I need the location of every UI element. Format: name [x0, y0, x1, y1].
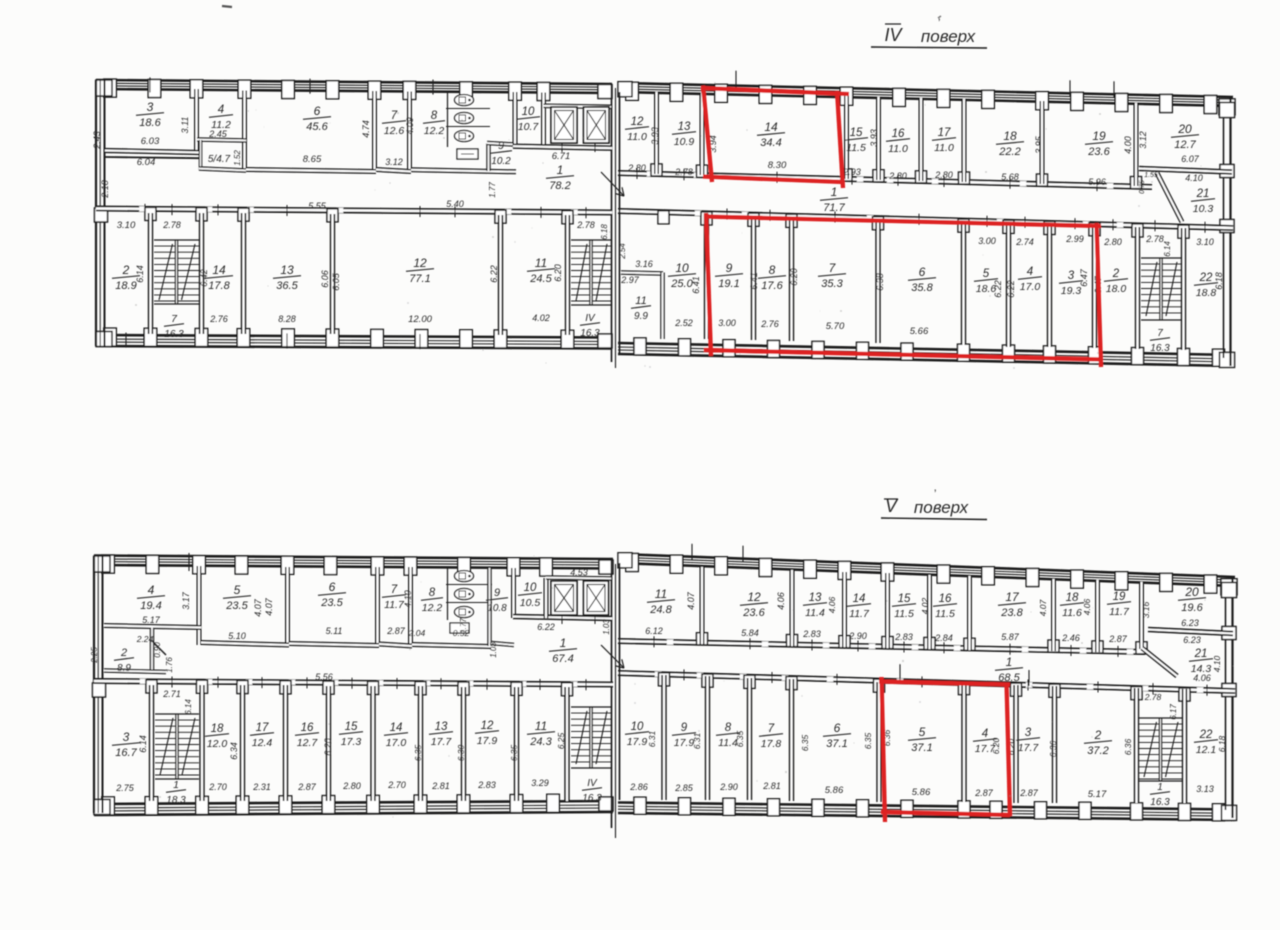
- svg-text:16: 16: [939, 593, 952, 605]
- svg-text:11.0: 11.0: [934, 142, 954, 154]
- svg-text:4.07: 4.07: [686, 591, 696, 610]
- svg-text:2.78: 2.78: [674, 167, 693, 177]
- svg-text:34.4: 34.4: [760, 137, 781, 149]
- svg-text:4.10: 4.10: [1212, 655, 1222, 672]
- svg-text:23.8: 23.8: [1000, 607, 1023, 619]
- svg-text:10: 10: [522, 106, 535, 118]
- svg-text:6.31: 6.31: [692, 732, 702, 749]
- svg-text:4.00: 4.00: [1123, 136, 1133, 154]
- svg-text:3.13: 3.13: [1196, 784, 1214, 794]
- svg-text:2.87: 2.87: [1019, 788, 1039, 798]
- svg-text:3.12: 3.12: [1138, 131, 1148, 149]
- svg-text:10: 10: [631, 721, 644, 733]
- svg-text:16.3: 16.3: [582, 793, 602, 804]
- svg-text:2.83: 2.83: [477, 780, 496, 790]
- svg-text:11.7: 11.7: [384, 599, 405, 611]
- svg-text:7: 7: [768, 723, 775, 735]
- svg-text:3.93: 3.93: [869, 129, 879, 147]
- svg-text:2: 2: [1112, 268, 1120, 280]
- svg-text:6.22: 6.22: [489, 265, 499, 283]
- svg-text:17: 17: [1005, 590, 1020, 604]
- svg-text:3.17: 3.17: [181, 591, 191, 610]
- svg-text:4.02: 4.02: [532, 313, 550, 323]
- svg-text:22: 22: [1199, 272, 1213, 284]
- svg-text:12.1: 12.1: [1196, 744, 1216, 756]
- svg-text:19.4: 19.4: [140, 600, 161, 612]
- svg-text:2.54: 2.54: [618, 243, 627, 260]
- svg-text:4.10: 4.10: [1185, 173, 1203, 183]
- svg-text:6.20: 6.20: [323, 738, 333, 756]
- svg-text:18: 18: [211, 723, 224, 735]
- svg-text:21: 21: [1194, 648, 1208, 660]
- svg-text:2.04: 2.04: [408, 628, 426, 638]
- svg-text:2.83: 2.83: [894, 632, 913, 642]
- svg-text:11: 11: [635, 295, 646, 307]
- svg-text:3.29: 3.29: [531, 778, 549, 788]
- svg-text:4: 4: [1027, 266, 1033, 278]
- svg-text:6.14: 6.14: [1163, 241, 1172, 257]
- svg-text:3.16: 3.16: [635, 259, 653, 269]
- svg-text:6.20: 6.20: [991, 737, 1001, 754]
- svg-text:11.5: 11.5: [846, 142, 866, 154]
- svg-text:20: 20: [1184, 585, 1199, 599]
- svg-text:6.36: 6.36: [1048, 740, 1058, 757]
- svg-text:16.3: 16.3: [164, 329, 184, 340]
- svg-text:6.06: 6.06: [320, 270, 330, 288]
- svg-text:5.17: 5.17: [1088, 789, 1107, 800]
- svg-text:24.3: 24.3: [529, 736, 552, 748]
- svg-text:1: 1: [173, 779, 179, 791]
- svg-text:18.9: 18.9: [115, 280, 136, 292]
- svg-text:4.06: 4.06: [776, 592, 786, 610]
- svg-text:5.10: 5.10: [228, 631, 246, 641]
- svg-text:1: 1: [831, 185, 838, 199]
- svg-text:67.4: 67.4: [552, 653, 573, 665]
- svg-text:8.30: 8.30: [768, 160, 787, 171]
- svg-text:10.8: 10.8: [487, 603, 507, 614]
- svg-text:6.47: 6.47: [1079, 268, 1089, 287]
- svg-text:5.56: 5.56: [315, 672, 333, 682]
- svg-text:9: 9: [498, 140, 504, 152]
- svg-text:20: 20: [1177, 122, 1192, 136]
- svg-text:2.86: 2.86: [629, 782, 648, 792]
- svg-text:5: 5: [919, 725, 926, 739]
- svg-text:36.5: 36.5: [276, 280, 298, 292]
- svg-text:12.7: 12.7: [297, 737, 319, 749]
- svg-text:6: 6: [919, 265, 926, 279]
- svg-text:поверх: поверх: [921, 27, 976, 46]
- svg-text:12: 12: [481, 720, 494, 732]
- svg-text:2.97: 2.97: [620, 275, 640, 285]
- svg-text:6.41: 6.41: [749, 272, 759, 290]
- svg-text:11: 11: [655, 587, 667, 601]
- svg-text:11.7: 11.7: [849, 608, 870, 620]
- svg-text:7: 7: [1157, 328, 1163, 339]
- svg-text:6: 6: [329, 580, 336, 594]
- svg-text:37.2: 37.2: [1087, 745, 1108, 757]
- svg-text:2.46: 2.46: [1061, 633, 1080, 643]
- svg-text:4.07: 4.07: [264, 597, 274, 616]
- svg-text:2.43: 2.43: [92, 131, 102, 150]
- svg-text:5.55: 5.55: [308, 201, 327, 211]
- svg-text:1.03: 1.03: [602, 619, 611, 635]
- svg-text:6: 6: [314, 104, 321, 118]
- svg-text:17.8: 17.8: [761, 738, 782, 750]
- svg-text:16.7: 16.7: [115, 747, 137, 759]
- svg-text:2.87: 2.87: [297, 782, 317, 792]
- svg-text:19.3: 19.3: [1061, 285, 1082, 297]
- svg-text:9: 9: [726, 261, 733, 275]
- svg-text:3: 3: [147, 100, 154, 114]
- svg-text:7: 7: [391, 584, 398, 596]
- svg-text:18.0: 18.0: [1106, 283, 1127, 295]
- svg-text:4.06: 4.06: [827, 596, 837, 613]
- svg-text:18.6: 18.6: [976, 283, 997, 295]
- svg-text:19.1: 19.1: [718, 278, 739, 290]
- svg-text:2.90: 2.90: [848, 631, 867, 641]
- svg-text:1: 1: [1157, 782, 1163, 793]
- svg-text:3.00: 3.00: [718, 318, 736, 328]
- svg-text:12.00: 12.00: [408, 314, 432, 325]
- svg-text:2.99: 2.99: [1065, 234, 1084, 244]
- svg-text:4.07: 4.07: [1038, 599, 1048, 616]
- svg-text:2.45: 2.45: [208, 129, 228, 139]
- svg-text:17.9: 17.9: [627, 736, 648, 748]
- svg-text:2.25: 2.25: [90, 647, 99, 664]
- svg-text:71.7: 71.7: [823, 202, 845, 214]
- svg-text:6.35: 6.35: [509, 744, 519, 761]
- svg-text:6.35: 6.35: [800, 734, 810, 751]
- svg-text:19.6: 19.6: [1181, 602, 1203, 614]
- svg-text:10.2: 10.2: [491, 156, 511, 167]
- svg-text:16: 16: [892, 128, 905, 140]
- svg-text:14: 14: [764, 120, 778, 134]
- svg-text:6.30: 6.30: [456, 744, 466, 761]
- svg-text:78.2: 78.2: [549, 180, 570, 192]
- svg-text:1.77: 1.77: [488, 182, 497, 198]
- svg-text:6.22: 6.22: [1006, 280, 1016, 298]
- svg-text:2.83: 2.83: [802, 629, 821, 639]
- svg-text:11.0: 11.0: [888, 143, 908, 155]
- svg-text:2.90: 2.90: [719, 782, 738, 792]
- svg-text:2.81: 2.81: [431, 781, 450, 791]
- svg-text:2.52: 2.52: [674, 318, 693, 328]
- svg-text:5.11: 5.11: [326, 626, 343, 636]
- svg-text:24.8: 24.8: [649, 604, 672, 616]
- svg-text:5: 5: [234, 583, 241, 597]
- svg-text:11: 11: [535, 719, 547, 733]
- svg-text:6.20: 6.20: [789, 268, 799, 286]
- svg-text:6.25: 6.25: [556, 732, 566, 749]
- svg-text:3.93: 3.93: [650, 127, 660, 145]
- svg-text:5.84: 5.84: [741, 628, 759, 638]
- svg-text:5: 5: [983, 268, 990, 280]
- svg-text:6.14: 6.14: [138, 735, 148, 753]
- svg-text:2.93: 2.93: [842, 167, 861, 177]
- svg-text:6.07: 6.07: [1181, 154, 1200, 164]
- svg-text:2.87: 2.87: [974, 788, 994, 798]
- svg-text:5.87: 5.87: [1001, 632, 1020, 642]
- svg-text:14: 14: [390, 722, 403, 734]
- svg-text:1: 1: [557, 163, 564, 177]
- svg-text:12.0: 12.0: [207, 738, 228, 750]
- svg-text:6.03: 6.03: [141, 136, 160, 147]
- svg-text:18: 18: [1003, 129, 1017, 143]
- svg-text:15: 15: [898, 593, 911, 605]
- svg-text:5.96: 5.96: [1088, 177, 1106, 187]
- svg-text:2.78: 2.78: [162, 220, 181, 230]
- svg-text:23.5: 23.5: [225, 600, 248, 612]
- svg-text:4.74: 4.74: [361, 120, 371, 138]
- svg-text:1: 1: [560, 636, 567, 650]
- svg-text:6.41: 6.41: [691, 276, 701, 294]
- svg-text:8.65: 8.65: [303, 154, 322, 165]
- svg-text:6.05: 6.05: [331, 272, 341, 291]
- svg-text:12.2: 12.2: [422, 602, 443, 614]
- svg-text:12: 12: [413, 256, 427, 270]
- svg-text:’: ’: [934, 488, 936, 500]
- svg-text:2.87: 2.87: [386, 626, 406, 636]
- svg-text:22.2: 22.2: [998, 146, 1020, 158]
- svg-text:2.80: 2.80: [627, 163, 646, 173]
- svg-text:8.9: 8.9: [117, 663, 131, 674]
- svg-text:4.06: 4.06: [1193, 673, 1211, 683]
- svg-text:4.07: 4.07: [253, 598, 263, 617]
- svg-text:10: 10: [675, 261, 689, 275]
- svg-text:2.31: 2.31: [252, 782, 271, 792]
- svg-text:2.85: 2.85: [674, 783, 694, 793]
- svg-text:12: 12: [747, 590, 761, 604]
- svg-text:2.24: 2.24: [136, 634, 154, 644]
- svg-text:13: 13: [809, 592, 822, 604]
- svg-text:поверх: поверх: [914, 498, 969, 517]
- svg-text:45.6: 45.6: [306, 121, 328, 133]
- svg-text:15: 15: [850, 127, 863, 139]
- svg-text:8.28: 8.28: [278, 314, 296, 324]
- svg-text:4.06: 4.06: [1082, 598, 1092, 615]
- svg-text:35.8: 35.8: [911, 282, 933, 294]
- svg-text:IV: IV: [587, 778, 598, 789]
- svg-text:4: 4: [148, 583, 155, 597]
- svg-text:6.18: 6.18: [600, 224, 609, 240]
- svg-text:8: 8: [769, 263, 776, 277]
- svg-text:5.70: 5.70: [826, 321, 845, 332]
- svg-text:4.10: 4.10: [403, 590, 413, 608]
- svg-text:5.68: 5.68: [1001, 172, 1019, 182]
- svg-text:3: 3: [123, 730, 130, 744]
- svg-text:’: ’: [938, 17, 940, 29]
- svg-text:17.7: 17.7: [431, 736, 453, 748]
- svg-text:6.36: 6.36: [1123, 738, 1133, 755]
- svg-text:9.9: 9.9: [634, 311, 648, 322]
- svg-text:2.80: 2.80: [934, 170, 953, 180]
- svg-text:18: 18: [1066, 592, 1079, 604]
- svg-text:4.53: 4.53: [570, 568, 588, 578]
- svg-text:12: 12: [631, 116, 644, 128]
- svg-text:2.74: 2.74: [1015, 237, 1034, 247]
- svg-text:24.5: 24.5: [529, 273, 552, 285]
- svg-text:3.00: 3.00: [978, 236, 996, 246]
- svg-text:6: 6: [834, 721, 841, 735]
- svg-text:8: 8: [431, 110, 438, 122]
- svg-text:2.70: 2.70: [387, 780, 406, 790]
- svg-text:9: 9: [494, 587, 500, 599]
- svg-text:2.84: 2.84: [934, 633, 953, 643]
- svg-text:8: 8: [725, 722, 732, 734]
- svg-text:13: 13: [280, 263, 294, 277]
- svg-text:11.0: 11.0: [627, 131, 647, 143]
- svg-text:4: 4: [218, 104, 224, 116]
- svg-text:2.76: 2.76: [209, 314, 228, 324]
- svg-text:1.76: 1.76: [165, 657, 174, 673]
- svg-text:6.14: 6.14: [184, 699, 193, 715]
- svg-text:6.31: 6.31: [647, 730, 657, 747]
- svg-text:16.3: 16.3: [1150, 343, 1170, 354]
- svg-text:3.12: 3.12: [385, 157, 403, 167]
- svg-text:6.04: 6.04: [137, 157, 156, 168]
- svg-text:16.3: 16.3: [580, 328, 600, 339]
- svg-text:13: 13: [678, 121, 691, 133]
- svg-text:14: 14: [212, 263, 226, 277]
- svg-text:17.3: 17.3: [341, 736, 362, 748]
- svg-text:10.5: 10.5: [520, 597, 541, 609]
- svg-text:0.75: 0.75: [1139, 180, 1146, 194]
- svg-text:4: 4: [982, 728, 988, 740]
- svg-text:6.18: 6.18: [1217, 735, 1227, 752]
- svg-text:IV: IV: [884, 25, 903, 45]
- svg-text:3.11: 3.11: [180, 117, 190, 134]
- svg-text:17: 17: [256, 722, 269, 734]
- svg-text:6.34: 6.34: [229, 742, 239, 760]
- svg-text:IV: IV: [585, 313, 596, 324]
- svg-text:18.6: 18.6: [139, 117, 161, 129]
- svg-text:6.42: 6.42: [199, 269, 209, 287]
- svg-text:11: 11: [535, 256, 547, 270]
- svg-text:12.2: 12.2: [424, 125, 445, 137]
- svg-text:12.7: 12.7: [1174, 139, 1196, 151]
- svg-text:10: 10: [524, 582, 537, 594]
- svg-text:1.52: 1.52: [233, 150, 242, 166]
- svg-text:11.4: 11.4: [805, 607, 825, 619]
- svg-text:17: 17: [938, 127, 951, 139]
- svg-text:5.86: 5.86: [825, 785, 844, 796]
- svg-text:17.0: 17.0: [386, 737, 407, 749]
- svg-text:2.80: 2.80: [888, 171, 907, 181]
- svg-text:19: 19: [1113, 591, 1126, 603]
- svg-text:7: 7: [391, 110, 398, 122]
- svg-text:5.66: 5.66: [910, 326, 929, 337]
- svg-text:6.71: 6.71: [552, 151, 571, 162]
- svg-text:6.14: 6.14: [135, 265, 145, 283]
- svg-text:21: 21: [1196, 188, 1210, 200]
- svg-text:6.38: 6.38: [875, 273, 885, 291]
- svg-text:6.22: 6.22: [537, 622, 555, 632]
- svg-text:11.5: 11.5: [894, 608, 914, 620]
- svg-text:77.1: 77.1: [409, 273, 430, 285]
- svg-text:1.55: 1.55: [1144, 172, 1158, 179]
- svg-text:10.9: 10.9: [674, 136, 695, 148]
- svg-text:23.5: 23.5: [320, 597, 343, 609]
- svg-text:2.70: 2.70: [208, 782, 227, 792]
- svg-text:5.86: 5.86: [912, 787, 931, 798]
- svg-text:2: 2: [120, 647, 127, 659]
- svg-text:12.6: 12.6: [384, 125, 405, 137]
- svg-text:6.35: 6.35: [863, 732, 873, 749]
- svg-text:35.3: 35.3: [821, 278, 843, 290]
- svg-text:3: 3: [1068, 270, 1075, 282]
- svg-text:16.3: 16.3: [1150, 797, 1170, 808]
- svg-text:2.76: 2.76: [760, 319, 779, 329]
- svg-text:1.03: 1.03: [489, 642, 498, 658]
- svg-text:2.81: 2.81: [762, 781, 781, 791]
- svg-text:3.10: 3.10: [1196, 237, 1214, 247]
- svg-text:17.6: 17.6: [761, 280, 783, 292]
- svg-text:3: 3: [1025, 727, 1032, 739]
- svg-text:17.0: 17.0: [1020, 281, 1041, 293]
- svg-text:17.8: 17.8: [208, 280, 230, 292]
- svg-text:6.12: 6.12: [645, 626, 663, 636]
- svg-text:6.35: 6.35: [413, 744, 423, 761]
- svg-text:11.5: 11.5: [935, 608, 955, 620]
- svg-text:1: 1: [1006, 655, 1013, 669]
- svg-text:22: 22: [1199, 729, 1213, 741]
- svg-text:18.3: 18.3: [166, 795, 186, 806]
- svg-text:11.7: 11.7: [1109, 606, 1130, 618]
- svg-text:19: 19: [1092, 129, 1106, 143]
- svg-text:4.09: 4.09: [405, 117, 415, 135]
- svg-text:17.9: 17.9: [477, 735, 498, 747]
- svg-text:17.7: 17.7: [1018, 742, 1040, 754]
- svg-text:6.35: 6.35: [735, 730, 745, 747]
- svg-text:2.78: 2.78: [576, 220, 595, 230]
- svg-text:37.1: 37.1: [826, 738, 847, 750]
- svg-text:16: 16: [301, 722, 314, 734]
- svg-text:6.18: 6.18: [1214, 272, 1224, 290]
- svg-text:6.23: 6.23: [1181, 618, 1199, 628]
- svg-text:1.77: 1.77: [459, 618, 468, 634]
- svg-text:2.78: 2.78: [1145, 234, 1164, 244]
- svg-text:2: 2: [122, 263, 130, 277]
- svg-text:11.6: 11.6: [1062, 607, 1082, 619]
- svg-text:15: 15: [345, 721, 358, 733]
- svg-text:10.7: 10.7: [518, 121, 540, 133]
- svg-text:2.75: 2.75: [115, 783, 135, 793]
- svg-text:23.6: 23.6: [742, 607, 765, 619]
- svg-text:37.1: 37.1: [911, 742, 932, 754]
- svg-text:14: 14: [853, 593, 866, 605]
- svg-text:10.3: 10.3: [1193, 203, 1214, 215]
- svg-text:9: 9: [681, 722, 688, 734]
- svg-text:13: 13: [435, 721, 448, 733]
- svg-text:5/4.7: 5/4.7: [208, 154, 231, 165]
- svg-text:6.17: 6.17: [1169, 704, 1178, 720]
- svg-text:5.17: 5.17: [142, 615, 161, 625]
- svg-text:23.6: 23.6: [1087, 146, 1110, 158]
- svg-text:6.20: 6.20: [553, 264, 563, 282]
- svg-text:8: 8: [429, 587, 436, 599]
- svg-text:3.10: 3.10: [117, 220, 136, 231]
- svg-text:2.80: 2.80: [342, 781, 361, 791]
- svg-text:2.80: 2.80: [1103, 237, 1122, 247]
- svg-text:2.78: 2.78: [1144, 692, 1162, 702]
- svg-text:2.87: 2.87: [1108, 634, 1128, 644]
- svg-text:12.4: 12.4: [252, 737, 273, 749]
- svg-text:2.71: 2.71: [162, 689, 181, 699]
- svg-text:6.23: 6.23: [1183, 635, 1201, 645]
- svg-text:5.40: 5.40: [446, 199, 464, 209]
- svg-text:2.18: 2.18: [100, 180, 110, 199]
- svg-text:2: 2: [1094, 728, 1102, 742]
